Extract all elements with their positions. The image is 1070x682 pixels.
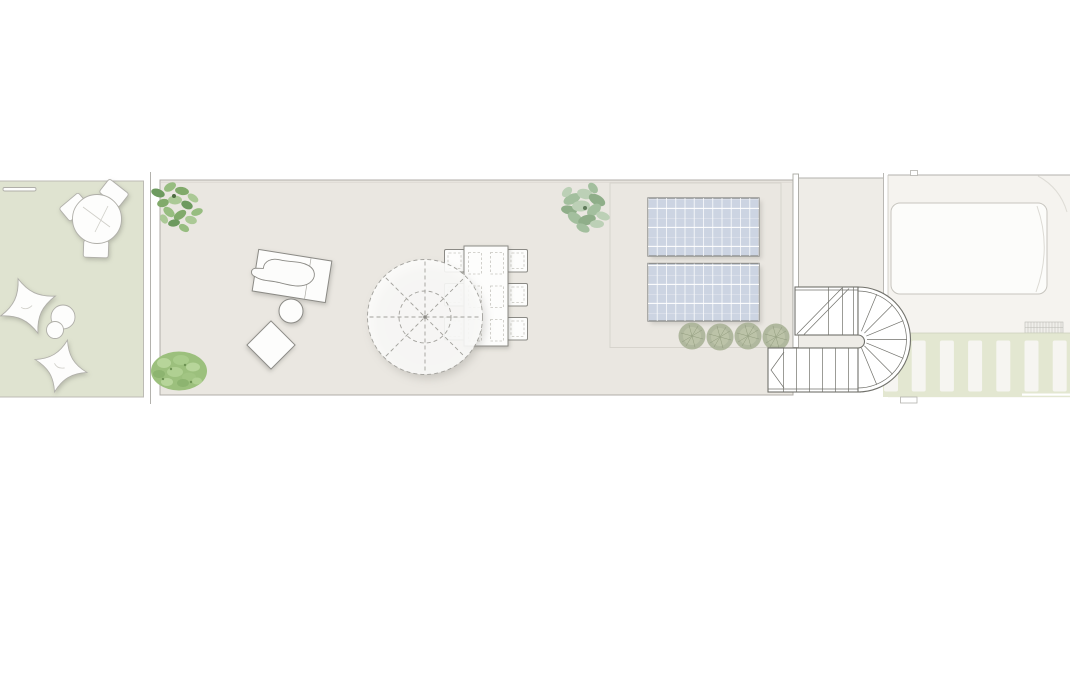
deck-slat <box>1025 341 1039 392</box>
deck-slat <box>996 341 1010 392</box>
side-table <box>279 299 303 323</box>
vent-grate <box>1025 322 1063 333</box>
parasol-pole <box>423 315 427 319</box>
floor-plan-canvas <box>0 0 1070 682</box>
deck-slat <box>968 341 982 392</box>
deck-rail-line <box>1022 394 1070 396</box>
garden-bench <box>3 188 36 192</box>
garden-area <box>0 179 144 399</box>
wall-notch <box>911 171 918 176</box>
hedge-shrub <box>763 324 790 351</box>
deck-slat <box>1053 341 1067 392</box>
bush-plant <box>151 352 207 391</box>
deck-slat <box>940 341 954 392</box>
deck-slat <box>912 341 926 392</box>
garden-round-table <box>73 195 122 244</box>
deck-step <box>901 397 918 403</box>
pouf-small <box>47 322 64 339</box>
dining-chairs-right <box>508 250 528 341</box>
hedge-shrub <box>707 324 734 351</box>
floor-plan-drawing <box>0 0 1070 682</box>
skylight-roof <box>891 203 1047 294</box>
hedge-shrub <box>679 323 706 350</box>
hedge-shrub <box>735 323 762 350</box>
deck-strip <box>883 333 1070 403</box>
